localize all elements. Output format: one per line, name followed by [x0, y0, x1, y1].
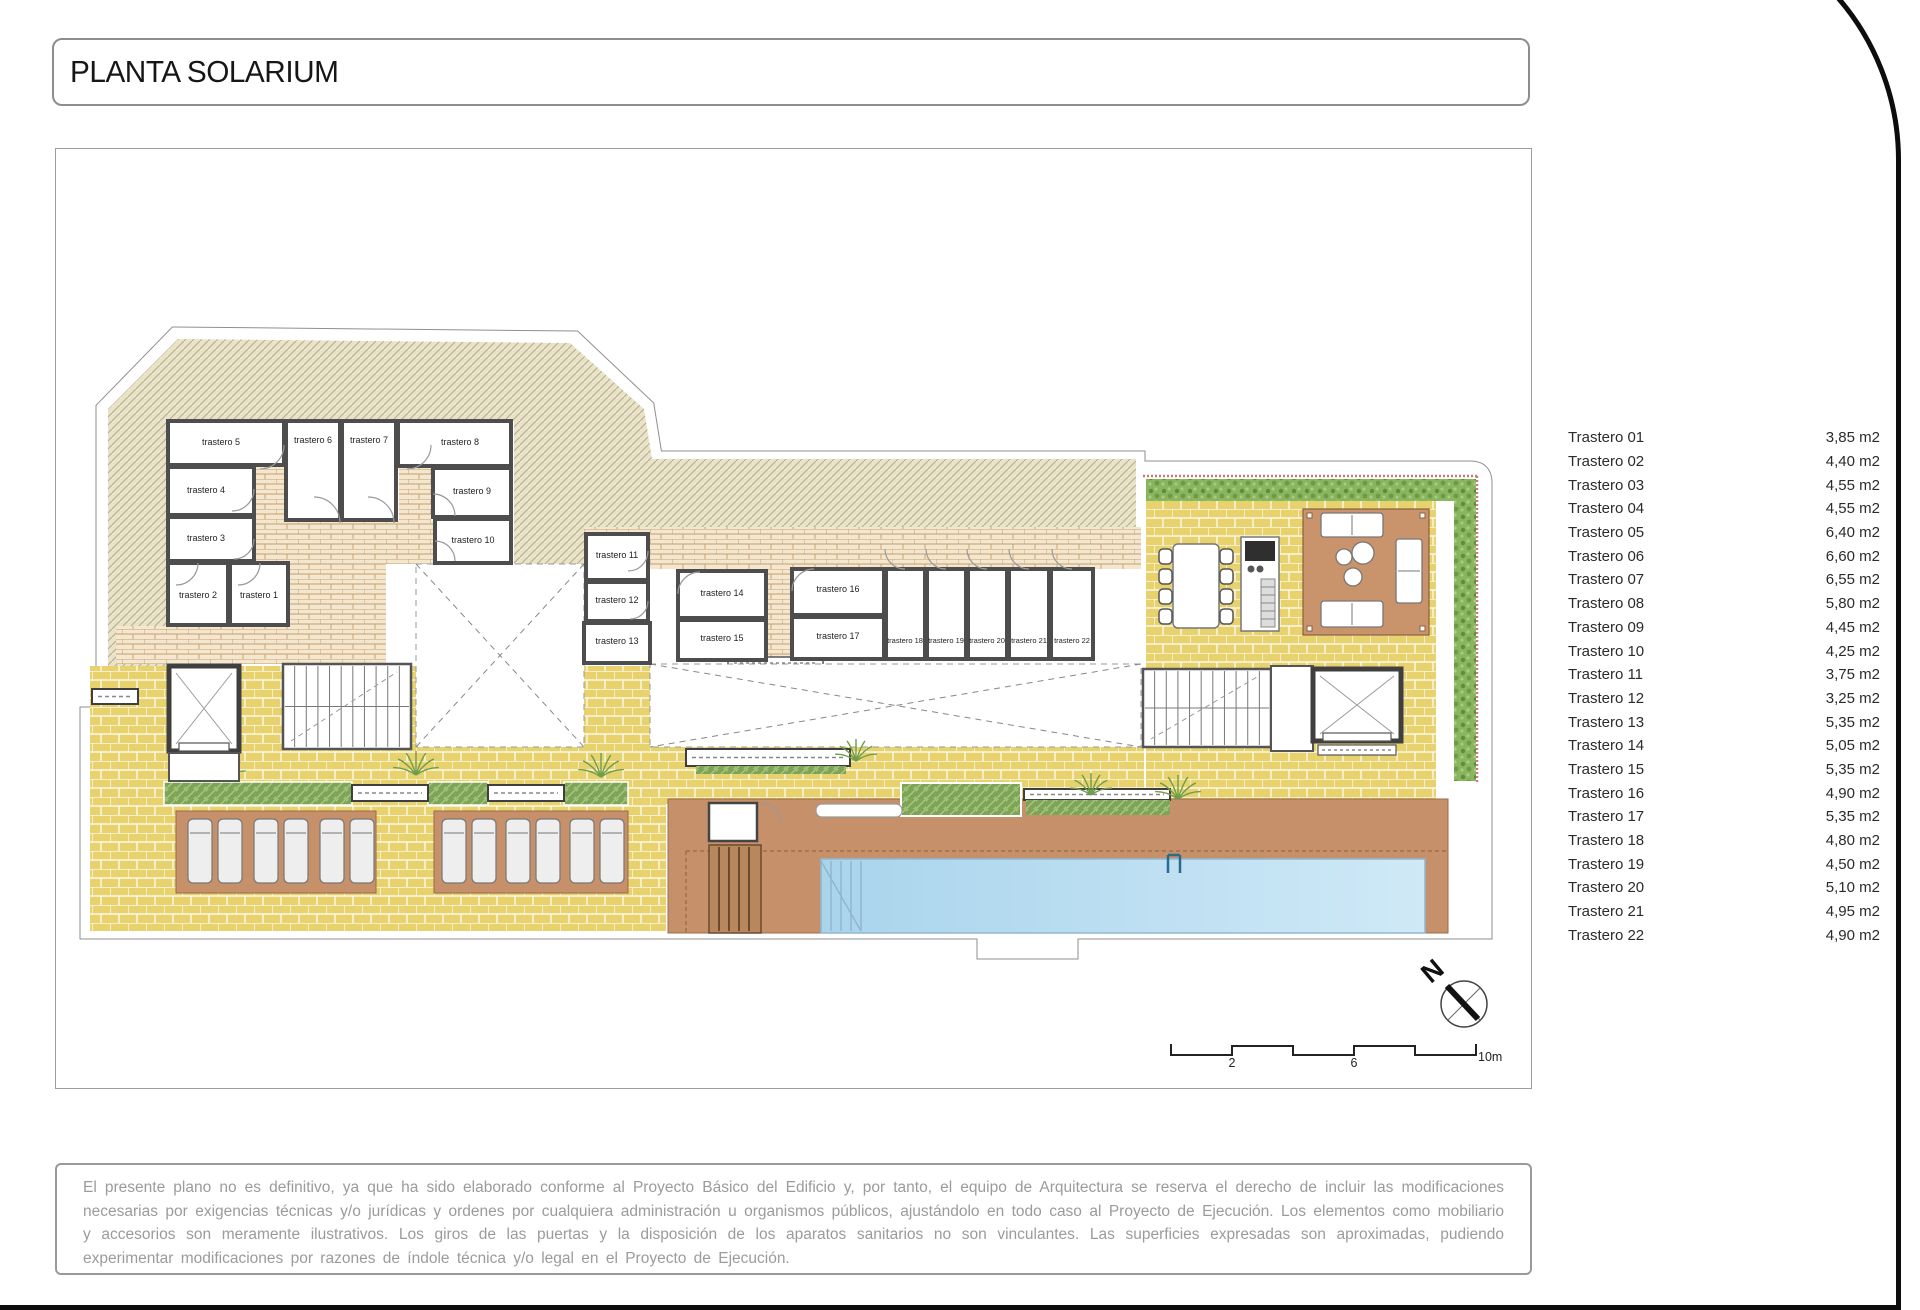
disclaimer-box: El presente plano no es definitivo, ya q…: [55, 1163, 1532, 1275]
room-trastero-20: [968, 569, 1007, 659]
legend-room-name: Trastero 04: [1568, 500, 1644, 517]
legend-row: Trastero 044,55 m2: [1568, 497, 1880, 521]
legend-room-area: 4,55 m2: [1826, 500, 1880, 517]
swimming-pool: [821, 859, 1425, 933]
room-trastero-21: [1009, 569, 1049, 659]
legend-row: Trastero 224,90 m2: [1568, 923, 1880, 947]
legend-room-area: 6,55 m2: [1826, 571, 1880, 588]
title-box: PLANTA SOLARIUM: [52, 38, 1530, 106]
legend-room-area: 5,05 m2: [1826, 737, 1880, 754]
room-label: trastero 2: [179, 590, 217, 600]
scale-label: 6: [1351, 1056, 1358, 1070]
room-label: trastero 11: [596, 550, 638, 560]
legend-row: Trastero 214,95 m2: [1568, 900, 1880, 924]
legend-row: Trastero 113,75 m2: [1568, 663, 1880, 687]
legend-row: Trastero 066,60 m2: [1568, 544, 1880, 568]
legend-room-name: Trastero 05: [1568, 524, 1644, 541]
deck-stairs: [709, 845, 761, 933]
legend-room-area: 4,40 m2: [1826, 453, 1880, 470]
legend-row: Trastero 034,55 m2: [1568, 473, 1880, 497]
legend-room-area: 4,50 m2: [1826, 856, 1880, 873]
floor-plan-container: trastero 1trastero 2trastero 3trastero 4…: [55, 148, 1532, 1089]
legend-room-name: Trastero 20: [1568, 879, 1644, 896]
room-label: trastero 9: [453, 486, 491, 496]
legend-room-area: 4,45 m2: [1826, 619, 1880, 636]
legend-row: Trastero 145,05 m2: [1568, 734, 1880, 758]
room-trastero-19: [927, 569, 966, 659]
legend-row: Trastero 094,45 m2: [1568, 616, 1880, 640]
legend-room-area: 5,35 m2: [1826, 761, 1880, 778]
legend-room-area: 6,60 m2: [1826, 548, 1880, 565]
room-label: trastero 4: [187, 485, 225, 495]
legend-room-name: Trastero 03: [1568, 477, 1644, 494]
legend-room-name: Trastero 08: [1568, 595, 1644, 612]
legend-room-area: 4,90 m2: [1826, 785, 1880, 802]
room-label: trastero 19: [928, 636, 964, 645]
legend-row: Trastero 194,50 m2: [1568, 852, 1880, 876]
room-label: trastero 13: [595, 636, 638, 646]
room-label: trastero 8: [441, 437, 479, 447]
legend-row: Trastero 104,25 m2: [1568, 639, 1880, 663]
legend-room-area: 5,80 m2: [1826, 595, 1880, 612]
hedge-right: [1454, 479, 1476, 781]
storage-corridor-left: [253, 521, 434, 564]
legend-row: Trastero 085,80 m2: [1568, 592, 1880, 616]
room-label: trastero 7: [350, 435, 388, 445]
scale-label: 2: [1229, 1056, 1236, 1070]
disclaimer-text: El presente plano no es definitivo, ya q…: [83, 1176, 1504, 1270]
legend-room-area: 4,25 m2: [1826, 643, 1880, 660]
legend-row: Trastero 184,80 m2: [1568, 829, 1880, 853]
legend-row: Trastero 024,40 m2: [1568, 450, 1880, 474]
scale-bar: 2610m: [1171, 1044, 1502, 1070]
legend-room-name: Trastero 15: [1568, 761, 1644, 778]
legend-room-name: Trastero 21: [1568, 903, 1644, 920]
lounge-deck: [1303, 509, 1429, 635]
planter-strip: [564, 782, 628, 805]
legend-row: Trastero 175,35 m2: [1568, 805, 1880, 829]
legend-room-name: Trastero 17: [1568, 808, 1644, 825]
legend-room-name: Trastero 12: [1568, 690, 1644, 707]
legend-room-area: 3,85 m2: [1826, 429, 1880, 446]
floor-plan-svg: trastero 1trastero 2trastero 3trastero 4…: [56, 149, 1531, 1088]
room-label: trastero 3: [187, 533, 225, 543]
room-label: trastero 6: [294, 435, 332, 445]
legend-room-name: Trastero 19: [1568, 856, 1644, 873]
legend-room-area: 5,35 m2: [1826, 714, 1880, 731]
legend-room-area: 6,40 m2: [1826, 524, 1880, 541]
legend-room-area: 5,10 m2: [1826, 879, 1880, 896]
scale-label: 10m: [1478, 1050, 1502, 1064]
legend-room-name: Trastero 09: [1568, 619, 1644, 636]
legend-room-area: 3,75 m2: [1826, 666, 1880, 683]
legend-room-area: 4,95 m2: [1826, 903, 1880, 920]
legend-room-name: Trastero 01: [1568, 429, 1644, 446]
legend-room-name: Trastero 13: [1568, 714, 1644, 731]
legend-row: Trastero 076,55 m2: [1568, 568, 1880, 592]
legend-row: Trastero 164,90 m2: [1568, 781, 1880, 805]
legend-room-name: Trastero 14: [1568, 737, 1644, 754]
shower-pad: [709, 803, 757, 841]
legend-row: Trastero 013,85 m2: [1568, 426, 1880, 450]
outdoor-kitchen: [1241, 537, 1279, 631]
legend-row: Trastero 123,25 m2: [1568, 687, 1880, 711]
room-label: trastero 12: [595, 595, 638, 605]
legend-row: Trastero 135,35 m2: [1568, 710, 1880, 734]
pool-bench: [816, 804, 902, 817]
legend-room-name: Trastero 07: [1568, 571, 1644, 588]
legend-row: Trastero 056,40 m2: [1568, 521, 1880, 545]
legend-row: Trastero 155,35 m2: [1568, 758, 1880, 782]
room-label: trastero 15: [700, 633, 743, 643]
room-trastero-22: [1051, 569, 1093, 659]
legend-room-name: Trastero 06: [1568, 548, 1644, 565]
page-title: PLANTA SOLARIUM: [70, 54, 338, 90]
legend-room-name: Trastero 18: [1568, 832, 1644, 849]
legend-room-area: 5,35 m2: [1826, 808, 1880, 825]
legend-room-area: 4,90 m2: [1826, 927, 1880, 944]
legend-room-name: Trastero 11: [1568, 666, 1643, 683]
hedge-top: [1146, 479, 1476, 501]
room-label: trastero 22: [1054, 636, 1090, 645]
legend-room-area: 4,55 m2: [1826, 477, 1880, 494]
room-label: trastero 14: [700, 588, 743, 598]
room-label: trastero 10: [451, 535, 494, 545]
room-label: trastero 21: [1011, 636, 1047, 645]
room-label: trastero 17: [816, 631, 859, 641]
north-arrow-icon: N: [1415, 953, 1487, 1027]
room-label: trastero 20: [969, 636, 1005, 645]
planter-strip: [164, 782, 352, 805]
room-label: trastero 1: [240, 590, 278, 600]
legend-row: Trastero 205,10 m2: [1568, 876, 1880, 900]
legend-room-name: Trastero 02: [1568, 453, 1644, 470]
room-trastero-18: [886, 569, 925, 659]
north-label: N: [1415, 953, 1449, 989]
legend-room-area: 4,80 m2: [1826, 832, 1880, 849]
room-label: trastero 18: [887, 636, 923, 645]
room-label: trastero 16: [816, 584, 859, 594]
legend-room-name: Trastero 16: [1568, 785, 1644, 802]
legend-room-area: 3,25 m2: [1826, 690, 1880, 707]
room-label: trastero 5: [202, 437, 240, 447]
floor-plan-drawing: trastero 1trastero 2trastero 3trastero 4…: [56, 149, 1531, 1093]
planter-box: [901, 783, 1021, 816]
planter-strip: [428, 782, 488, 805]
legend-room-name: Trastero 22: [1568, 927, 1644, 944]
legend-room-name: Trastero 10: [1568, 643, 1644, 660]
sheet: { "title": "PLANTA SOLARIUM", "legend": …: [0, 0, 1920, 1280]
core-corridor: [1271, 666, 1313, 751]
storage-area-legend: Trastero 013,85 m2Trastero 024,40 m2Tras…: [1568, 426, 1880, 947]
